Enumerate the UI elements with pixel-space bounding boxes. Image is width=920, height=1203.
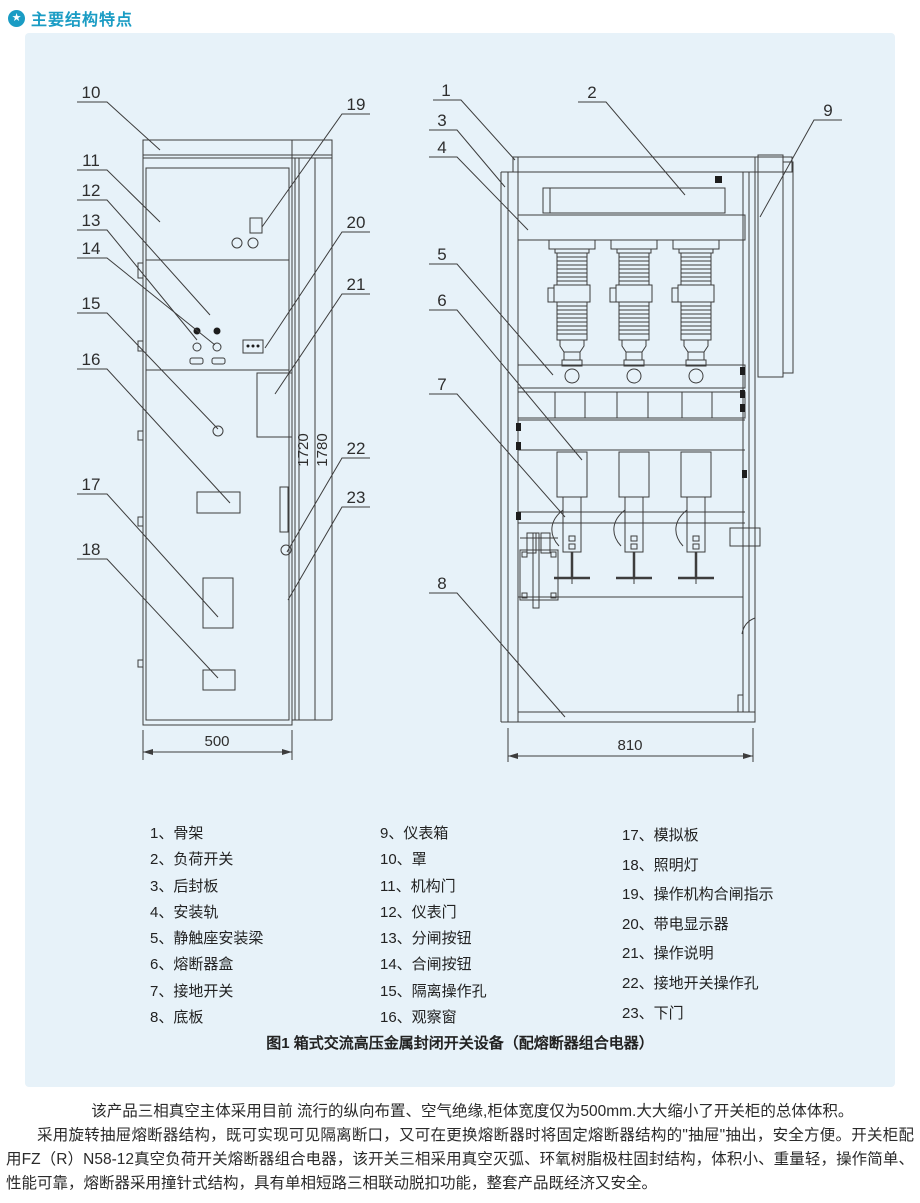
legend-item: 4、安装轨 [150,900,263,926]
legend-item: 23、下门 [622,999,774,1029]
legend-item: 16、观察窗 [380,1005,487,1031]
door-handle [280,487,288,532]
star-circle-icon: ★ [8,10,25,27]
legend-item: 22、接地开关操作孔 [622,969,774,999]
catalog-page: { "header": { "title": "主要结构特点", "icon":… [0,0,920,1203]
legend-item: 17、模拟板 [622,821,774,851]
callout-label: 22 [347,439,366,458]
dimension-annotations: 500 810 1720 1780 [143,433,753,762]
legend-column-2: 9、仪表箱 10、罩 11、机构门 12、仪表门 13、分闸按钮 14、合闸按钮… [380,821,487,1031]
callout-label: 7 [437,375,446,394]
legend-item: 13、分闸按钮 [380,926,487,952]
callout-label: 4 [437,138,446,157]
close-button [214,328,221,335]
legend-item: 12、仪表门 [380,900,487,926]
legend-item: 7、接地开关 [150,979,263,1005]
legend-column-3: 17、模拟板 18、照明灯 19、操作机构合闸指示 20、带电显示器 21、操作… [622,821,774,1028]
legend-item: 15、隔离操作孔 [380,979,487,1005]
legend-item: 14、合闸按钮 [380,952,487,978]
instrument-box-panel [758,155,783,377]
page-header: ★ 主要结构特点 [8,6,133,30]
callout-label: 8 [437,574,446,593]
callout-label: 13 [82,211,101,230]
figure-caption: 图1 箱式交流高压金属封闭开关设备（配熔断器组合电器） [25,1032,895,1053]
roof [513,157,792,172]
load-switch-body [543,188,725,213]
description-paragraph-2: 采用旋转抽屉熔断器结构，既可实现可见隔离断口，又可在更换熔断器时将固定熔断器结构… [6,1124,914,1196]
legend-item: 20、带电显示器 [622,910,774,940]
lighting-lamp [203,670,235,690]
callout-label: 3 [437,111,446,130]
description-paragraph-1: 该产品三相真空主体采用目前 流行的纵向布置、空气绝缘,柜体宽度仅为500mm.大… [6,1100,914,1124]
callout-label: 14 [82,239,101,258]
description-text: 该产品三相真空主体采用目前 流行的纵向布置、空气绝缘,柜体宽度仅为500mm.大… [6,1100,914,1196]
mounting-rail [518,215,745,240]
top-cover [143,140,332,155]
legend-item: 8、底板 [150,1005,263,1031]
inner-height-dimension: 1720 [295,433,312,466]
figure-panel: 10 11 12 13 14 15 16 17 18 19 20 21 22 2… [25,33,895,1087]
callout-label: 19 [347,95,366,114]
callout-label: 11 [82,151,100,170]
legend-item: 9、仪表箱 [380,821,487,847]
observation-window [197,492,240,513]
fuse-box [619,452,649,497]
legend-item: 18、照明灯 [622,851,774,881]
fuse-box [557,452,587,497]
callout-label: 1 [441,81,450,100]
total-height-dimension: 1780 [314,433,331,466]
legend-item: 3、后封板 [150,874,263,900]
legend-item: 10、罩 [380,847,487,873]
legend-item: 11、机构门 [380,874,487,900]
static-contact-beam [518,365,745,388]
legend-column-1: 1、骨架 2、负荷开关 3、后封板 4、安装轨 5、静触座安装梁 6、熔断器盒 … [150,821,263,1031]
side-width-dimension: 810 [617,737,642,754]
legend-item: 19、操作机构合闸指示 [622,880,774,910]
front-view-drawing [138,140,332,725]
bottom-plate [501,712,755,722]
callout-label: 15 [82,294,101,313]
legend-item: 1、骨架 [150,821,263,847]
fuse-box [681,452,711,497]
callout-label: 12 [82,181,101,200]
front-door [146,168,289,720]
callout-label: 16 [82,350,101,369]
front-width-dimension: 500 [204,733,229,750]
technical-diagram: 10 11 12 13 14 15 16 17 18 19 20 21 22 2… [25,60,895,780]
callout-label: 17 [82,475,101,494]
mimic-board [203,578,233,628]
callout-label: 2 [587,83,596,102]
legend-item: 2、负荷开关 [150,847,263,873]
callout-label: 20 [347,213,366,232]
callout-label: 23 [347,488,366,507]
earthing-switch-blades [554,552,714,578]
operation-instruction-plate [257,373,292,437]
closing-indicator [250,218,262,233]
callout-label: 5 [437,245,446,264]
legend-item: 6、熔断器盒 [150,952,263,978]
callout-label: 21 [347,275,366,294]
legend-item: 5、静触座安装梁 [150,926,263,952]
callout-label: 18 [82,540,101,559]
callout-label: 10 [82,83,101,102]
legend-item: 21、操作说明 [622,939,774,969]
callout-leader-lines [77,100,842,717]
side-view-drawing [501,155,793,722]
page-title: 主要结构特点 [31,6,133,30]
isolation-operation-hole [213,426,223,436]
callout-label: 6 [437,291,446,310]
callout-label: 9 [823,101,832,120]
